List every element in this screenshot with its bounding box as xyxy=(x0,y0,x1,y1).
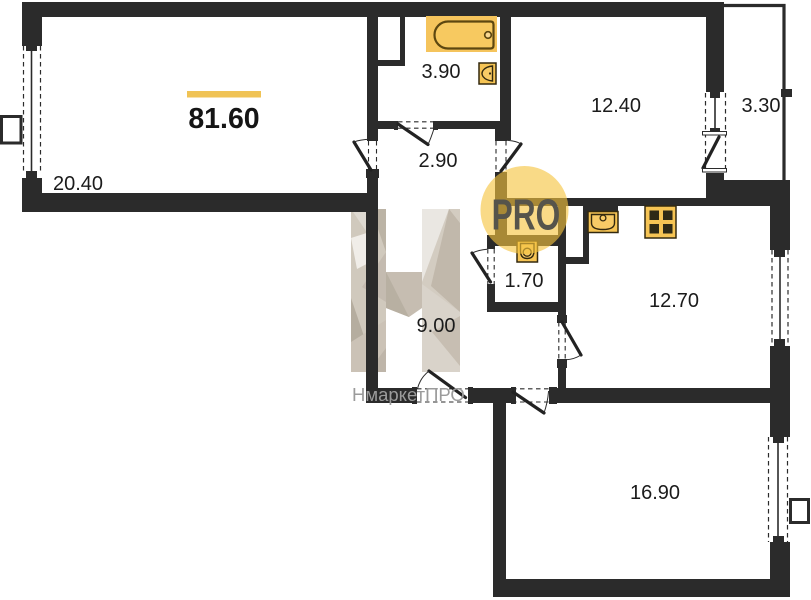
svg-text:20.40: 20.40 xyxy=(53,173,103,195)
svg-text:3.90: 3.90 xyxy=(422,61,461,83)
svg-text:1.70: 1.70 xyxy=(505,270,544,292)
svg-text:НмаркетПРО: НмаркетПРО xyxy=(352,384,465,405)
svg-text:12.40: 12.40 xyxy=(591,95,641,117)
svg-text:12.70: 12.70 xyxy=(649,290,699,312)
svg-text:3.30: 3.30 xyxy=(742,95,781,117)
svg-text:2.90: 2.90 xyxy=(419,150,458,172)
svg-text:16.90: 16.90 xyxy=(630,482,680,504)
svg-text:9.00: 9.00 xyxy=(417,315,456,337)
svg-text:PRO: PRO xyxy=(492,190,561,239)
svg-text:81.60: 81.60 xyxy=(188,103,259,135)
